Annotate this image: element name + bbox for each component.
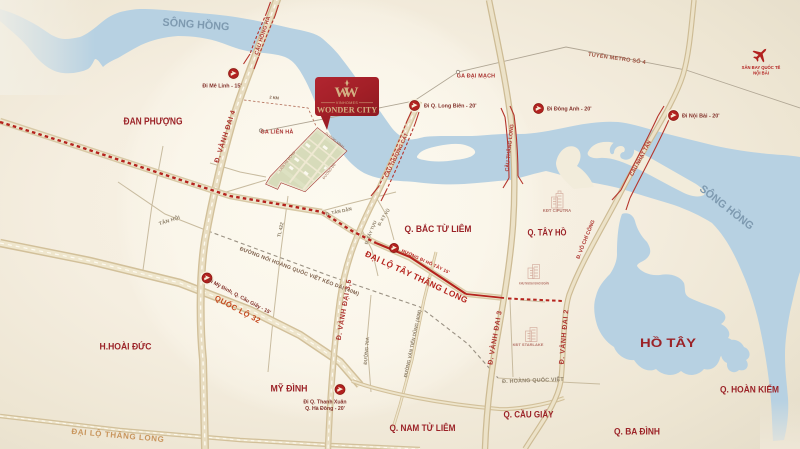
svg-text:GA ĐẠI MẠCH: GA ĐẠI MẠCH: [457, 74, 496, 80]
svg-text:Q. CẦU GIẤY: Q. CẦU GIẤY: [504, 410, 554, 421]
svg-text:W: W: [344, 85, 359, 101]
svg-text:MỸ ĐÌNH: MỸ ĐÌNH: [271, 383, 308, 395]
svg-text:HỒ TÂY: HỒ TÂY: [640, 335, 696, 350]
svg-text:KĐT CIPUTRA: KĐT CIPUTRA: [543, 208, 571, 213]
svg-text:Đi Nội Bài - 20': Đi Nội Bài - 20': [682, 114, 720, 120]
svg-text:Đi Q. Thanh Xuân: Đi Q. Thanh Xuân: [303, 400, 346, 406]
svg-text:Đi Mê Linh - 15': Đi Mê Linh - 15': [202, 84, 241, 90]
svg-text:Q. NAM TỬ LIÊM: Q. NAM TỬ LIÊM: [390, 422, 456, 434]
svg-text:Đi Q. Long Biên - 20': Đi Q. Long Biên - 20': [424, 104, 477, 110]
svg-text:KĐT STARLAKE: KĐT STARLAKE: [513, 342, 544, 347]
svg-text:KHU NGOẠI GIAO ĐOÀN: KHU NGOẠI GIAO ĐOÀN: [519, 281, 549, 286]
svg-text:Q. BA ĐÌNH: Q. BA ĐÌNH: [614, 426, 660, 438]
svg-text:Q. HOÀN KIẾM: Q. HOÀN KIẾM: [720, 384, 779, 396]
svg-text:Q. BẮC TỪ LIÊM: Q. BẮC TỪ LIÊM: [405, 223, 472, 235]
svg-text:ĐAN PHƯỢNG: ĐAN PHƯỢNG: [124, 116, 183, 128]
svg-text:NỘI BÀI: NỘI BÀI: [753, 71, 769, 76]
svg-text:H.HOÀI ĐỨC: H.HOÀI ĐỨC: [100, 341, 152, 353]
svg-text:SÂN BAY QUỐC TẾ: SÂN BAY QUỐC TẾ: [742, 65, 781, 70]
svg-text:Đi Đông Anh - 20': Đi Đông Anh - 20': [547, 107, 592, 113]
svg-text:WONDER CITY: WONDER CITY: [317, 106, 377, 115]
svg-text:GA LIÊN HÀ: GA LIÊN HÀ: [261, 128, 294, 136]
svg-text:Q. Hà Đông - 20': Q. Hà Đông - 20': [305, 406, 345, 412]
svg-text:Q. TÂY HỒ: Q. TÂY HỒ: [528, 227, 567, 239]
